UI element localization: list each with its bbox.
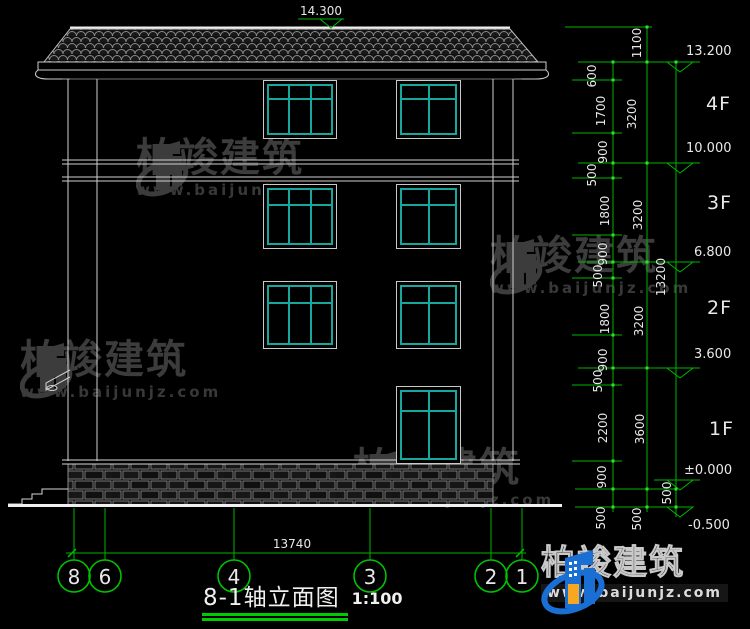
dim-label: 500	[660, 482, 674, 505]
dim-label: 3200	[632, 306, 646, 337]
floor-label-1f: 1F	[709, 418, 734, 440]
elevation-label: 13.200	[686, 44, 732, 59]
drawing-title: 8-1轴立面图	[203, 586, 340, 611]
window-1f	[396, 386, 461, 464]
floor-label-3f: 3F	[707, 192, 732, 214]
ground-line	[8, 504, 562, 507]
dim-label: 13200	[654, 258, 668, 296]
window-2f-left	[263, 281, 337, 349]
footer-logo-icon	[541, 546, 611, 620]
window-4f-left	[263, 80, 337, 139]
dim-label: 3200	[625, 99, 639, 130]
window-3f-left	[263, 184, 337, 249]
drawing-title-row: 8-1轴立面图 1:100	[203, 586, 403, 611]
window-2f-right	[396, 281, 461, 349]
dim-label: 3200	[631, 200, 645, 231]
entry-steps	[8, 489, 68, 504]
window-4f-right	[396, 80, 461, 139]
drawing-scale: 1:100	[352, 589, 403, 611]
elevation-label: 10.000	[686, 141, 732, 156]
stone-base	[62, 460, 520, 505]
dim-label: 500	[594, 507, 608, 530]
axis-bubble-2: 2	[485, 565, 498, 589]
axis-bubble-1: 1	[516, 565, 529, 589]
dim-label: 900	[596, 141, 610, 164]
elevation-label: ±0.000	[684, 463, 732, 478]
window-3f-right	[396, 184, 461, 249]
dim-label: 3600	[633, 414, 647, 445]
elevation-drawing: 柏竣建筑 www.baijunjz.com 柏竣建筑 www.baijunjz.…	[0, 0, 750, 629]
roof	[35, 28, 548, 80]
roof-elevation-label: 14.300	[300, 4, 342, 18]
dim-label: 900	[595, 466, 609, 489]
dim-label: 1100	[630, 28, 644, 59]
title-underline	[202, 613, 348, 621]
dim-label: 1800	[598, 304, 612, 335]
floor-label-4f: 4F	[706, 93, 731, 115]
elevation-label: -0.500	[688, 518, 730, 533]
dim-label: 500	[630, 508, 644, 531]
dim-label: 500	[591, 265, 605, 288]
wall-spout	[46, 370, 70, 391]
dim-label: 1700	[594, 96, 608, 127]
dim-label: 1800	[598, 196, 612, 227]
dim-label: 900	[596, 349, 610, 372]
overall-dimension-label: 13740	[273, 537, 311, 551]
elevation-label: 6.800	[694, 245, 731, 260]
footer-logo: 柏竣建筑 www.baijunjz.com	[541, 546, 728, 602]
elevation-label: 3.600	[694, 347, 731, 362]
dim-label: 600	[585, 65, 599, 88]
floor-label-2f: 2F	[707, 297, 732, 319]
dim-label: 2200	[596, 413, 610, 444]
dim-label: 500	[585, 164, 599, 187]
floor-band	[62, 160, 519, 181]
dim-label: 900	[596, 243, 610, 266]
axis-bubble-8: 8	[68, 565, 81, 589]
axis-bubble-6: 6	[99, 565, 112, 589]
dim-label: 500	[591, 370, 605, 393]
